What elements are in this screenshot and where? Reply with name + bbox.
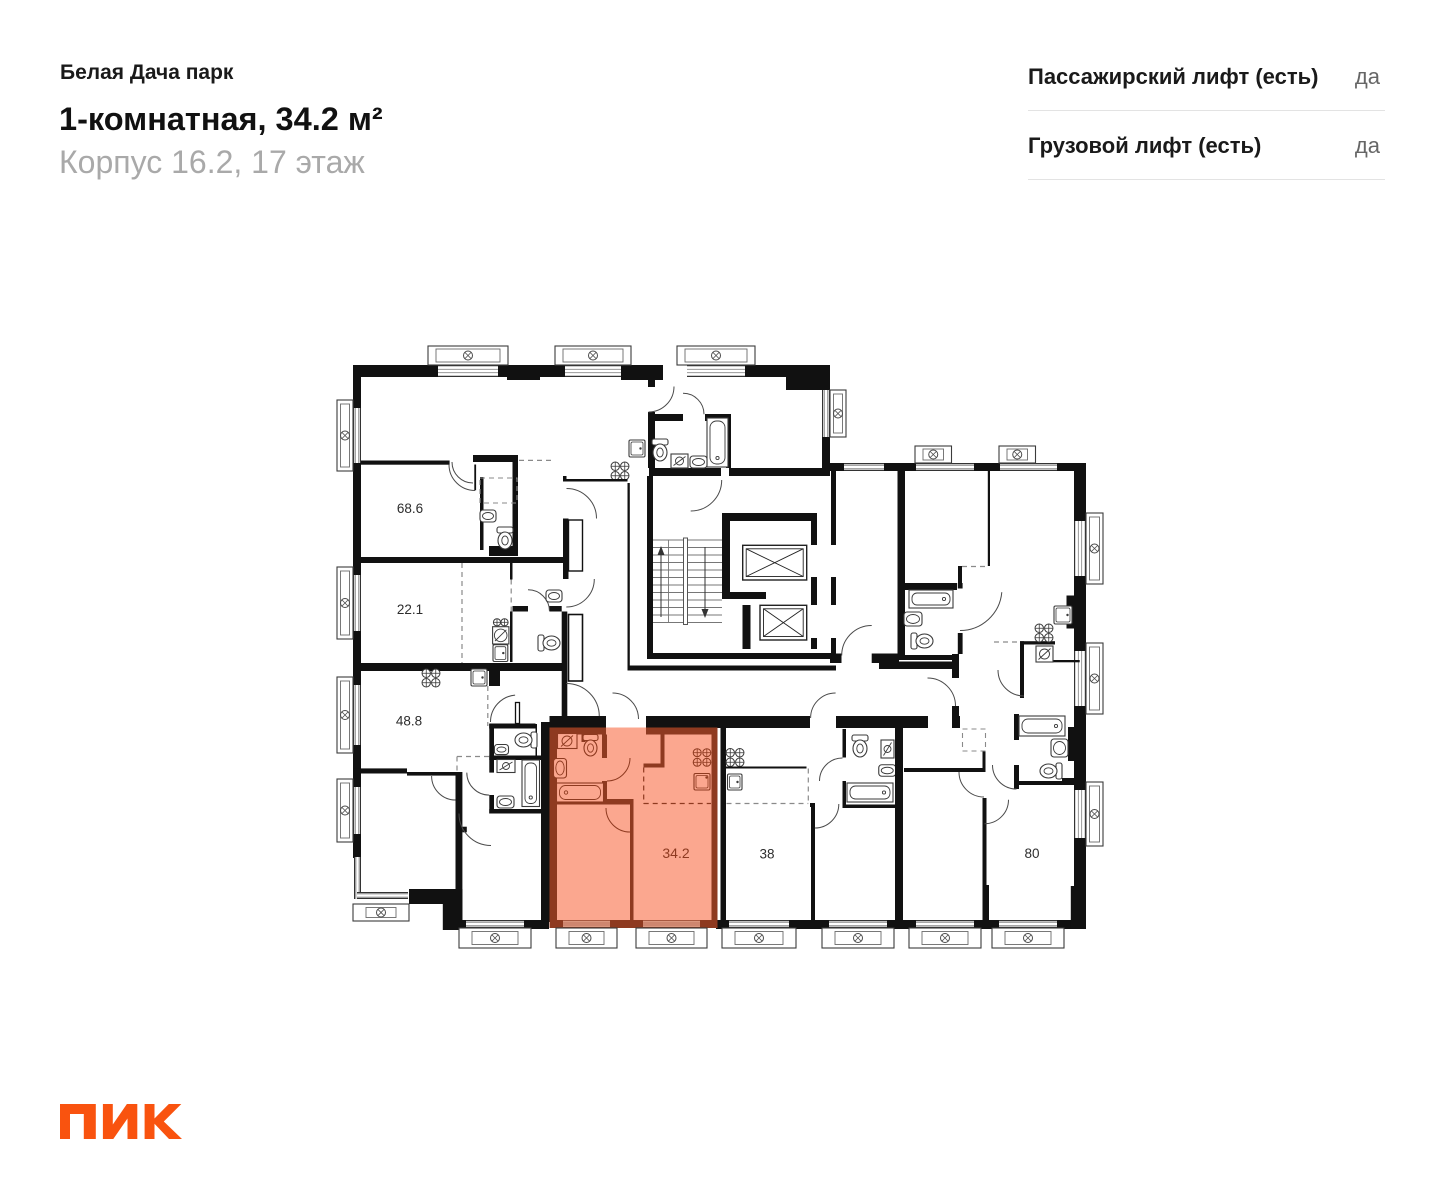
svg-text:38: 38 [759, 847, 774, 862]
svg-text:34.2: 34.2 [662, 845, 689, 861]
svg-text:68.6: 68.6 [397, 501, 423, 516]
svg-text:80: 80 [1024, 846, 1039, 861]
svg-text:48.8: 48.8 [396, 714, 422, 729]
svg-text:22.1: 22.1 [397, 602, 423, 617]
